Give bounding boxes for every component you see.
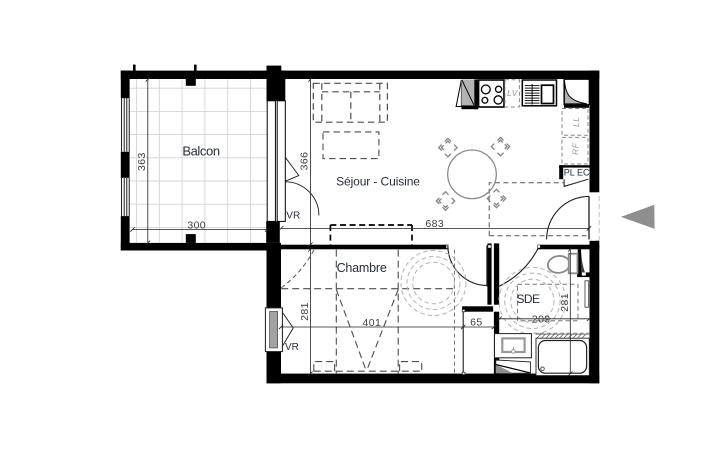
svg-text:RF: RF <box>571 142 581 155</box>
svg-text:363: 363 <box>136 152 148 171</box>
svg-text:281: 281 <box>559 293 571 312</box>
svg-text:LV: LV <box>507 88 519 98</box>
svg-text:VR: VR <box>286 210 300 221</box>
svg-text:281: 281 <box>299 302 311 321</box>
svg-text:PL EC: PL EC <box>564 168 590 178</box>
svg-text:LL: LL <box>571 117 581 127</box>
svg-text:65: 65 <box>470 316 482 328</box>
svg-text:401: 401 <box>363 317 382 329</box>
svg-text:VR: VR <box>285 342 299 353</box>
svg-text:683: 683 <box>425 218 444 230</box>
svg-text:209: 209 <box>532 314 551 326</box>
svg-text:SDE: SDE <box>517 292 540 306</box>
svg-text:300: 300 <box>187 219 206 231</box>
svg-text:366: 366 <box>299 152 311 171</box>
svg-text:Chambre: Chambre <box>337 261 387 275</box>
svg-text:Séjour - Cuisine: Séjour - Cuisine <box>336 174 420 188</box>
svg-text:Balcon: Balcon <box>182 143 220 158</box>
